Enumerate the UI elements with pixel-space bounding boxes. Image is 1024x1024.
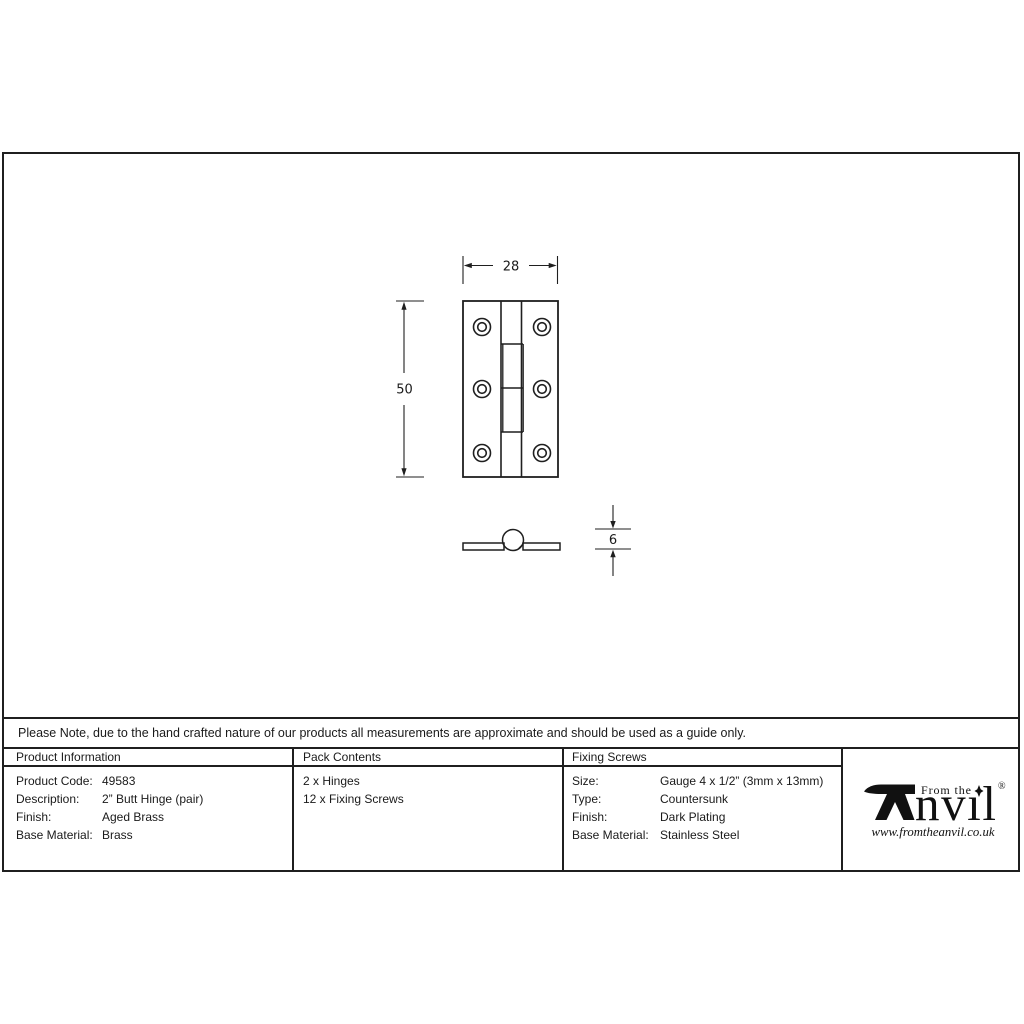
column-divider-3 xyxy=(841,747,843,870)
product-code-row: Product Code: 49583 xyxy=(16,774,135,789)
note-top-divider xyxy=(4,717,1018,719)
from-the-anvil-logo: From the nvıl ® www.fromtheanvil.co.uk xyxy=(862,780,1008,846)
row-value: Gauge 4 x 1/2” (3mm x 13mm) xyxy=(660,774,823,789)
logo-website: www.fromtheanvil.co.uk xyxy=(872,824,995,839)
description-row: Description: 2” Butt Hinge (pair) xyxy=(16,792,203,807)
row-label: Type: xyxy=(572,792,660,807)
column-divider-2 xyxy=(562,747,564,870)
registered-trademark-icon: ® xyxy=(998,781,1006,792)
finish-row: Finish: Aged Brass xyxy=(16,810,164,825)
height-dimension-label: 50 xyxy=(396,383,413,398)
hinge-side-view xyxy=(463,530,560,551)
measurements-note: Please Note, due to the hand crafted nat… xyxy=(18,725,998,741)
row-value: Brass xyxy=(102,828,133,843)
sheet-border-box: 28 50 6 Please Note, due to the hand cra… xyxy=(2,152,1020,872)
row-label: Description: xyxy=(16,792,102,807)
row-value: Countersunk xyxy=(660,792,728,807)
pack-item: 2 x Hinges xyxy=(303,774,360,789)
row-label: Finish: xyxy=(572,810,660,825)
anvil-icon xyxy=(864,785,915,821)
row-value: Aged Brass xyxy=(102,810,164,825)
row-label: Size: xyxy=(572,774,660,789)
table-header-underline xyxy=(4,765,843,767)
row-label: Finish: xyxy=(16,810,102,825)
row-value: Dark Plating xyxy=(660,810,725,825)
row-value: 2” Butt Hinge (pair) xyxy=(102,792,203,807)
product-information-header: Product Information xyxy=(16,749,121,765)
row-value: 49583 xyxy=(102,774,135,789)
pack-item-row: 2 x Hinges xyxy=(303,774,360,789)
screw-finish-row: Finish: Dark Plating xyxy=(572,810,725,825)
hinge-front-view xyxy=(463,301,558,477)
column-divider-1 xyxy=(292,747,294,870)
pack-contents-header: Pack Contents xyxy=(303,749,381,765)
screw-size-row: Size: Gauge 4 x 1/2” (3mm x 13mm) xyxy=(572,774,823,789)
pack-item-row: 12 x Fixing Screws xyxy=(303,792,404,807)
fixing-screws-header: Fixing Screws xyxy=(572,749,647,765)
row-label: Base Material: xyxy=(572,828,660,843)
screw-base-material-row: Base Material: Stainless Steel xyxy=(572,828,739,843)
technical-drawing: 28 50 6 xyxy=(380,245,660,590)
product-spec-sheet: 28 50 6 Please Note, due to the hand cra… xyxy=(0,0,1024,1024)
screw-holes xyxy=(474,319,551,462)
screw-type-row: Type: Countersunk xyxy=(572,792,728,807)
width-dimension-label: 28 xyxy=(503,260,520,275)
table-top-border xyxy=(4,747,1018,749)
pack-item: 12 x Fixing Screws xyxy=(303,792,404,807)
row-value: Stainless Steel xyxy=(660,828,739,843)
base-material-row: Base Material: Brass xyxy=(16,828,133,843)
thickness-dimension-label: 6 xyxy=(609,533,617,548)
row-label: Base Material: xyxy=(16,828,102,843)
row-label: Product Code: xyxy=(16,774,102,789)
